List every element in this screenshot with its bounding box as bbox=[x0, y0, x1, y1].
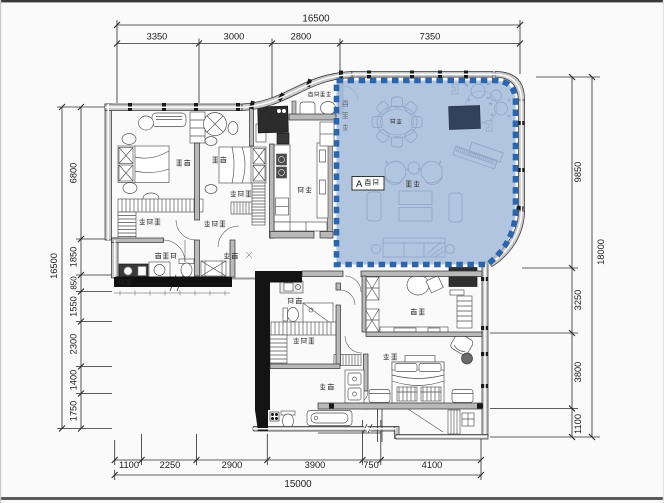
svg-text:3800: 3800 bbox=[573, 362, 583, 383]
svg-text:1400: 1400 bbox=[69, 370, 79, 391]
svg-text:3900: 3900 bbox=[305, 460, 326, 470]
svg-text:1550: 1550 bbox=[69, 296, 79, 317]
svg-text:16500: 16500 bbox=[302, 14, 330, 25]
svg-text:18000: 18000 bbox=[596, 239, 606, 265]
svg-text:850: 850 bbox=[70, 276, 79, 290]
svg-text:2800: 2800 bbox=[291, 32, 312, 42]
svg-text:4100: 4100 bbox=[422, 460, 443, 470]
svg-text:1850: 1850 bbox=[69, 247, 79, 268]
svg-text:7350: 7350 bbox=[420, 32, 441, 42]
svg-text:6800: 6800 bbox=[69, 163, 79, 184]
svg-text:2300: 2300 bbox=[69, 334, 79, 355]
svg-text:2250: 2250 bbox=[160, 460, 181, 470]
svg-text:1750: 1750 bbox=[69, 401, 79, 422]
svg-text:750: 750 bbox=[363, 460, 379, 470]
svg-text:1100: 1100 bbox=[573, 414, 583, 434]
svg-text:15000: 15000 bbox=[284, 479, 312, 490]
svg-text:3000: 3000 bbox=[224, 32, 245, 42]
svg-text:16500: 16500 bbox=[49, 253, 59, 279]
svg-text:1100: 1100 bbox=[119, 460, 139, 470]
svg-text:2900: 2900 bbox=[222, 460, 243, 470]
svg-text:3250: 3250 bbox=[573, 290, 583, 311]
svg-text:A: A bbox=[356, 179, 363, 190]
svg-text:9850: 9850 bbox=[573, 162, 583, 183]
svg-text:3350: 3350 bbox=[147, 32, 168, 42]
